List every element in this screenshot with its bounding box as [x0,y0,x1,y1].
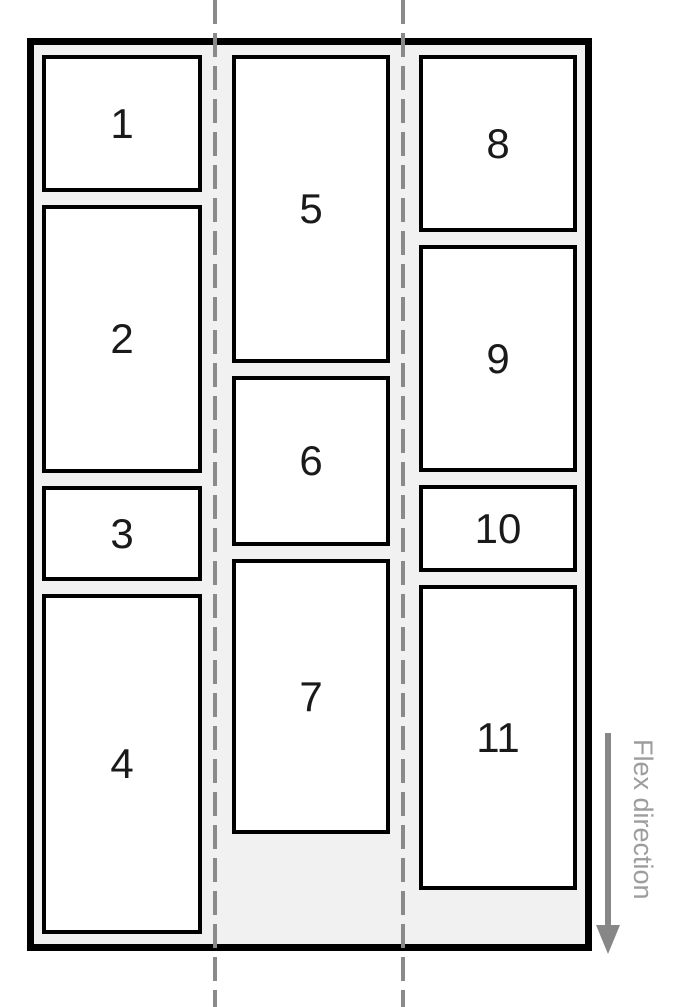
flex-item-8: 8 [419,55,577,232]
flex-item-11-label: 11 [476,717,520,759]
column-wrap-guide-line-2 [401,0,405,1007]
flex-item-3: 3 [42,486,202,581]
flex-item-11: 11 [419,585,577,890]
flex-item-10-label: 10 [475,508,522,550]
flex-item-1-label: 1 [110,103,133,145]
flex-item-10: 10 [419,485,577,572]
flex-item-8-label: 8 [486,123,509,165]
flex-item-3-label: 3 [110,513,133,555]
flex-item-7: 7 [232,559,390,834]
flex-item-4: 4 [42,594,202,934]
flex-item-2: 2 [42,205,202,473]
flex-direction-arrow-icon [595,730,625,956]
flex-column-3: 8 9 10 11 [419,55,577,890]
column-wrap-guide-line-1 [213,0,217,1007]
flex-item-6: 6 [232,376,390,546]
flex-container: 1 2 3 4 5 6 7 8 [27,38,592,951]
flex-item-1: 1 [42,55,202,192]
flex-item-5: 5 [232,55,390,363]
flex-item-6-label: 6 [299,440,322,482]
flex-wrap-diagram: 1 2 3 4 5 6 7 8 [0,0,674,1007]
flex-item-7-label: 7 [299,676,322,718]
flex-item-2-label: 2 [110,318,133,360]
flex-column-1: 1 2 3 4 [42,55,202,934]
flex-item-9-label: 9 [486,338,509,380]
flex-direction-label: Flex direction [624,739,662,989]
flex-item-4-label: 4 [110,743,133,785]
flex-item-5-label: 5 [299,188,322,230]
flex-item-9: 9 [419,245,577,472]
arrow-head-icon [596,925,620,954]
flex-column-2: 5 6 7 [232,55,390,834]
